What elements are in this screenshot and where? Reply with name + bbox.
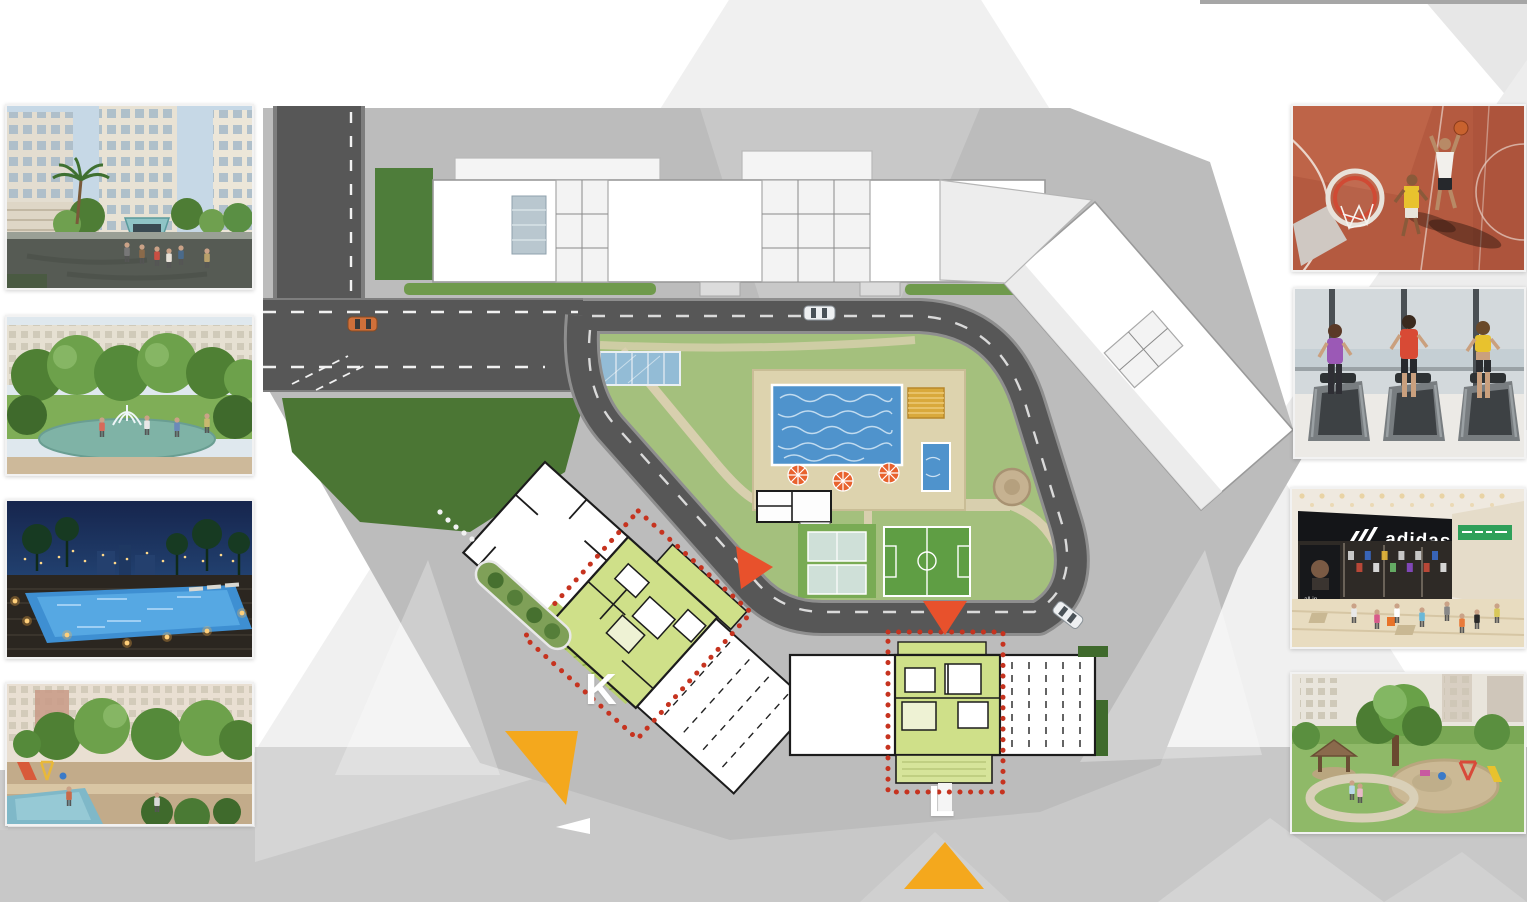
- football-field: [884, 527, 970, 596]
- masterplan-page: K L: [0, 0, 1527, 902]
- photo-park-playground[interactable]: [1290, 672, 1526, 834]
- photo-gym[interactable]: [1293, 287, 1526, 459]
- pool-area: [753, 370, 965, 535]
- block-k-label: K: [585, 668, 617, 712]
- photo-entrance-render[interactable]: [5, 104, 254, 290]
- canopy-court: [600, 352, 680, 385]
- photo-garden-render[interactable]: [5, 315, 254, 476]
- photo-night-pool-render[interactable]: [5, 499, 254, 659]
- car-white-top-icon: [804, 306, 835, 320]
- block-l-label: L: [928, 780, 955, 824]
- basketball-hoop-icon: [1328, 171, 1382, 228]
- gazebo-plaza: [994, 469, 1030, 505]
- photo-basketball-court[interactable]: [1291, 104, 1526, 272]
- green-store-sign: [1458, 525, 1512, 540]
- photo-courtyard-render[interactable]: [5, 682, 254, 826]
- sun-deck: [908, 388, 944, 418]
- top-right-bar: [1200, 0, 1527, 4]
- kids-pool: [922, 443, 950, 491]
- fountain-pond: [39, 419, 215, 459]
- car-orange-icon: [348, 317, 377, 331]
- photo-shopping-mall[interactable]: adidas all in or nothing: [1290, 487, 1526, 649]
